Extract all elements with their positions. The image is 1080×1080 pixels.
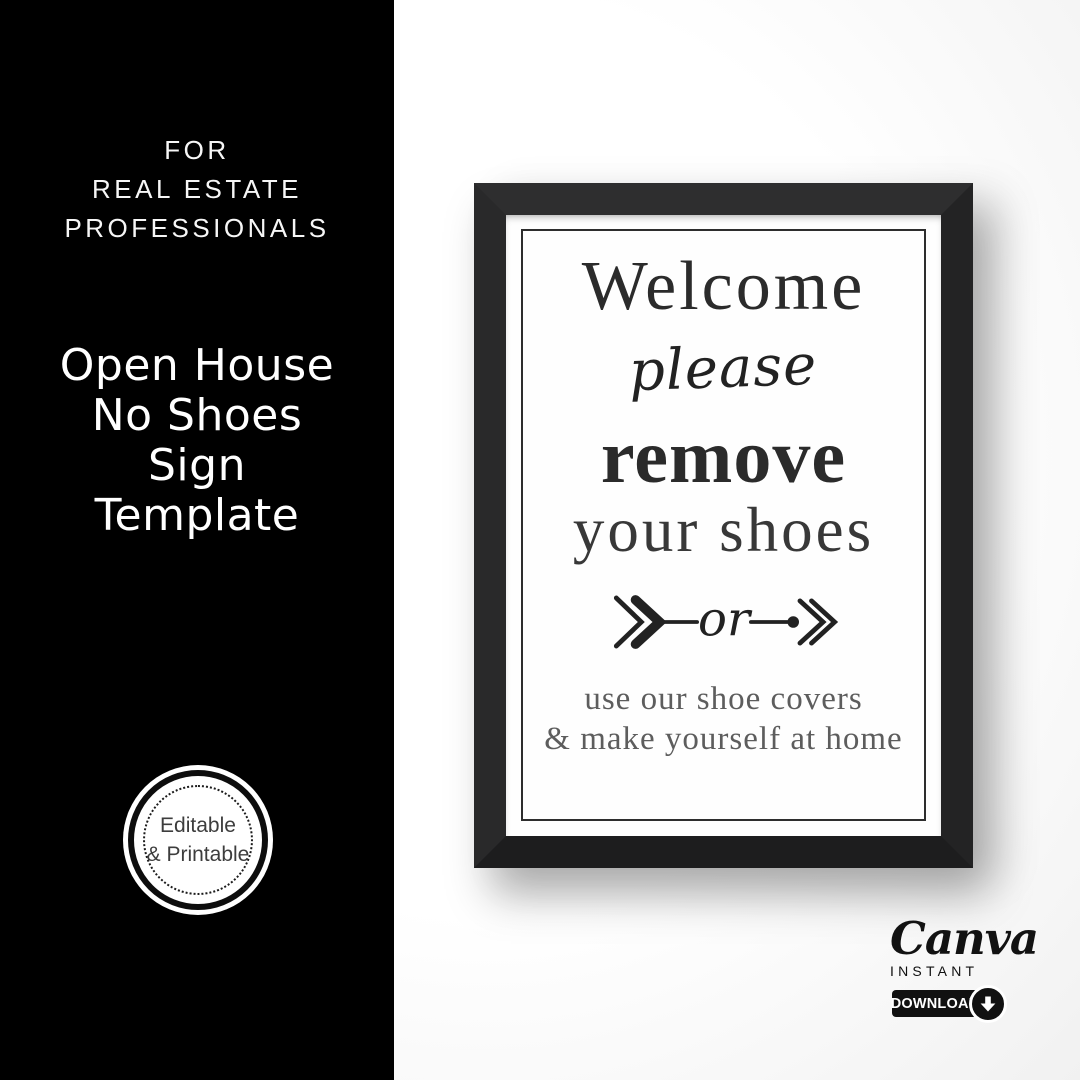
product-title-line: No Shoes	[0, 391, 394, 441]
download-badge: DOWNLOAD	[890, 985, 1020, 1023]
badge-text-line: Editable	[160, 811, 236, 840]
canva-logo: Canva	[890, 916, 1020, 962]
poster-mat: Welcome please remove your shoes	[506, 215, 941, 836]
editable-printable-badge: Editable & Printable	[123, 765, 273, 915]
product-title-line: Sign	[0, 441, 394, 491]
product-title: Open House No Shoes Sign Template	[0, 341, 394, 541]
branding-block: Canva INSTANT DOWNLOAD	[890, 916, 1020, 1026]
poster-frame: Welcome please remove your shoes	[474, 183, 973, 868]
poster-subheading: your shoes	[573, 497, 874, 563]
product-title-line: Template	[0, 491, 394, 541]
badge-text: Editable & Printable	[123, 765, 273, 915]
audience-line: FOR	[0, 131, 394, 170]
audience-label: FOR REAL ESTATE PROFESSIONALS	[0, 131, 394, 248]
audience-line: PROFESSIONALS	[0, 209, 394, 248]
poster-footer-line: use our shoe covers	[544, 679, 902, 719]
poster-script-word: please	[628, 320, 819, 419]
audience-line: REAL ESTATE	[0, 170, 394, 209]
instant-label: INSTANT	[890, 963, 1020, 979]
badge-text-line: & Printable	[147, 840, 250, 869]
download-label: DOWNLOAD	[892, 990, 978, 1017]
download-arrow-icon	[969, 985, 1007, 1023]
poster-footer-line: & make yourself at home	[544, 719, 902, 759]
left-text-panel: FOR REAL ESTATE PROFESSIONALS Open House…	[0, 0, 394, 1080]
arrow-divider-icon: or	[599, 587, 849, 657]
poster-sign: Welcome please remove your shoes	[521, 229, 926, 821]
poster-heading: Welcome	[582, 251, 866, 323]
listing-image: Welcome please remove your shoes	[0, 0, 1080, 1080]
divider-word: or	[698, 591, 753, 647]
poster-emphasis-word: remove	[601, 417, 846, 497]
product-title-line: Open House	[0, 341, 394, 391]
poster-footer: use our shoe covers & make yourself at h…	[544, 679, 902, 759]
